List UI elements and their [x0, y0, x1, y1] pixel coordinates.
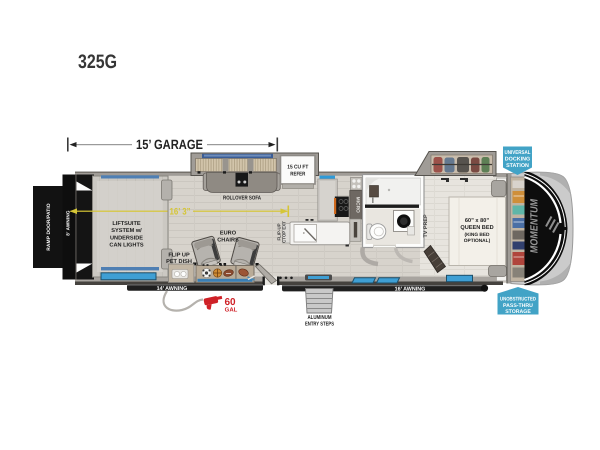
svg-text:EURO: EURO — [220, 231, 237, 237]
svg-text:REFER: REFER — [290, 172, 305, 178]
svg-text:8’ AWNING: 8’ AWNING — [66, 210, 71, 236]
svg-text:GAL: GAL — [225, 307, 238, 314]
svg-text:CTOP EXT: CTOP EXT — [282, 221, 287, 243]
svg-text:16’ 3”: 16’ 3” — [170, 207, 191, 218]
svg-text:PET DISH: PET DISH — [166, 259, 192, 265]
svg-text:SYSTEM w/: SYSTEM w/ — [111, 227, 142, 234]
svg-text:60” x 80”: 60” x 80” — [465, 218, 489, 224]
svg-text:UNDERSIDE: UNDERSIDE — [110, 235, 143, 241]
svg-text:15 CU FT: 15 CU FT — [287, 165, 309, 171]
svg-text:DOCKING: DOCKING — [505, 157, 530, 163]
svg-text:UNIVERSAL: UNIVERSAL — [505, 150, 532, 156]
svg-text:325G: 325G — [78, 51, 117, 73]
svg-text:PASS-THRU: PASS-THRU — [503, 303, 533, 309]
svg-text:OPTIONAL): OPTIONAL) — [464, 238, 491, 244]
svg-text:STORAGE: STORAGE — [505, 309, 531, 315]
svg-text:15’ GARAGE: 15’ GARAGE — [136, 137, 203, 152]
svg-text:14’ AWNING: 14’ AWNING — [157, 286, 188, 292]
svg-text:ENTRY STEPS: ENTRY STEPS — [305, 322, 334, 328]
svg-text:ALUMINUM: ALUMINUM — [308, 315, 332, 321]
svg-text:MICRO: MICRO — [355, 197, 361, 213]
svg-text:ROLLOVER SOFA: ROLLOVER SOFA — [223, 196, 261, 202]
svg-text:(KING BED: (KING BED — [464, 232, 490, 238]
svg-text:TV PREP: TV PREP — [423, 214, 429, 237]
svg-text:QUEEN BED: QUEEN BED — [460, 225, 493, 231]
svg-text:60: 60 — [224, 297, 236, 308]
svg-text:MOMENTUM: MOMENTUM — [529, 199, 541, 253]
svg-text:FLIP UP: FLIP UP — [168, 253, 190, 259]
svg-text:UNOBSTRUCTED: UNOBSTRUCTED — [500, 297, 536, 303]
svg-text:RAMP DOOR/PATIO: RAMP DOOR/PATIO — [46, 203, 52, 251]
svg-text:CAN LIGHTS: CAN LIGHTS — [109, 243, 143, 249]
svg-text:STATION: STATION — [506, 163, 529, 169]
svg-text:LIFTSUITE: LIFTSUITE — [112, 221, 141, 227]
svg-text:CHAIRS: CHAIRS — [217, 238, 239, 244]
svg-text:16’ AWNING: 16’ AWNING — [395, 287, 426, 293]
